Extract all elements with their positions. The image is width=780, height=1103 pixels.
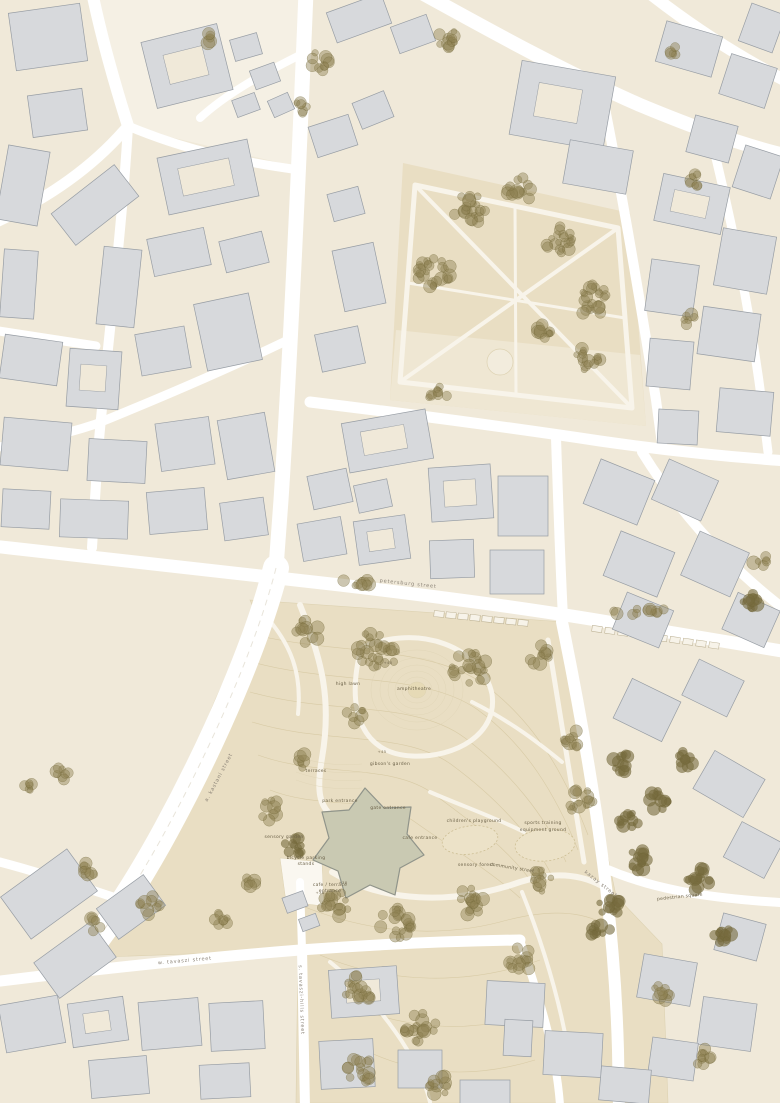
- building: [543, 1031, 603, 1078]
- label-childrens-playground: children's playground: [447, 818, 502, 824]
- building: [0, 995, 66, 1053]
- building: [498, 476, 548, 536]
- building: [648, 1037, 699, 1081]
- label-terraces: terraces: [306, 768, 327, 774]
- building: [0, 334, 63, 386]
- label-amphitheatre: amphitheatre: [397, 686, 431, 692]
- building: [87, 439, 147, 484]
- building: [27, 88, 87, 137]
- building: [460, 1080, 510, 1103]
- courtyard: [533, 82, 582, 123]
- building: [138, 997, 202, 1050]
- courtyard: [83, 1010, 112, 1033]
- courtyard: [79, 364, 107, 392]
- label-gibsons-garden: gibson's garden: [370, 761, 410, 767]
- label-sensory-garden: sensory garden: [264, 834, 303, 840]
- label-cafe-entrance: cafe entrance: [402, 835, 437, 841]
- building: [217, 412, 275, 479]
- building: [146, 488, 207, 535]
- courtyard: [367, 528, 396, 551]
- label-park-entrance: park entrance: [322, 798, 358, 804]
- plaza-circle: [487, 349, 513, 375]
- label-elevation-45: +45: [378, 749, 387, 754]
- building: [429, 539, 474, 579]
- label-bicycle-parking: bicycle parking: [287, 855, 326, 861]
- building: [8, 3, 87, 70]
- building: [0, 417, 72, 471]
- building: [135, 326, 192, 376]
- building: [209, 1001, 265, 1052]
- building: [713, 228, 776, 294]
- building: [646, 338, 694, 390]
- label-sensory-forest: sensory forest: [458, 862, 494, 868]
- label-sports-training: sports training: [524, 820, 561, 826]
- building: [657, 409, 699, 445]
- building: [199, 1063, 251, 1100]
- label-bicycle-parking-2: stands: [298, 861, 315, 867]
- building: [1, 489, 51, 529]
- label-elevation-38: +38: [339, 880, 348, 885]
- building: [96, 246, 142, 328]
- courtyard: [443, 479, 477, 507]
- building: [697, 306, 761, 362]
- building: [155, 416, 215, 471]
- building: [88, 1056, 149, 1099]
- label-equipment-ground: equipment ground: [520, 827, 567, 833]
- site-plan-map[interactable]: petersburg street a. kastani street kaza…: [0, 0, 780, 1103]
- building: [0, 249, 38, 319]
- label-gate-entrance: gate entrance: [370, 805, 406, 811]
- building: [716, 388, 774, 437]
- label-elevation-40: +40: [384, 660, 393, 665]
- label-elevation-36: +36: [316, 890, 325, 895]
- building: [599, 1066, 652, 1103]
- building: [59, 499, 128, 539]
- building: [220, 497, 269, 541]
- building: [490, 550, 544, 594]
- map-canvas: petersburg street a. kastani street kaza…: [0, 0, 780, 1103]
- building: [503, 1019, 533, 1056]
- building: [297, 516, 347, 561]
- label-high-lawn: high lawn: [336, 681, 360, 687]
